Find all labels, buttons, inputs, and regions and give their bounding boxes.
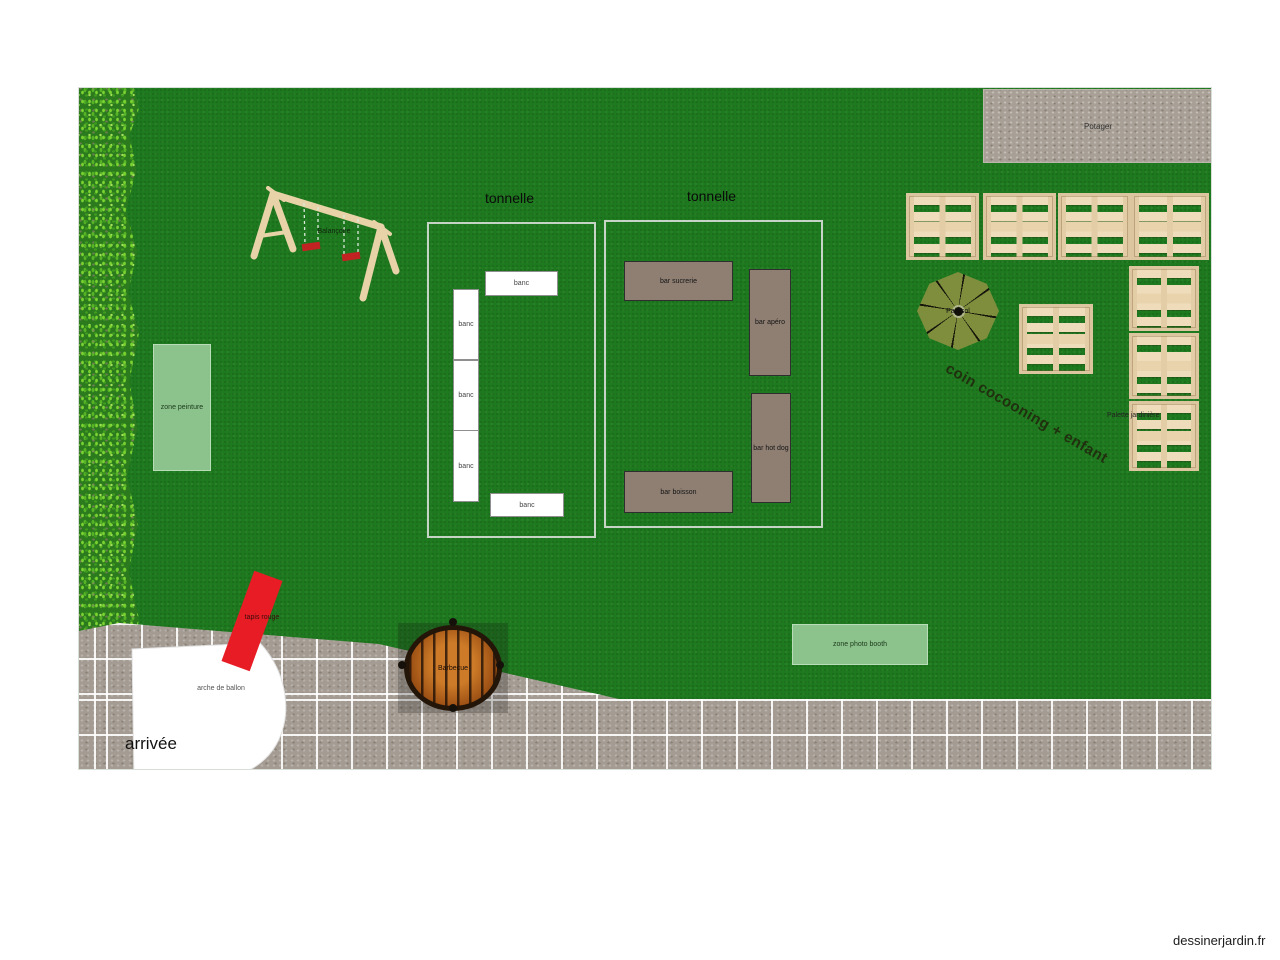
bench[interactable]: banc [485, 271, 558, 296]
pallet[interactable] [1131, 193, 1209, 260]
bar-boisson[interactable]: bar boisson [624, 471, 733, 513]
bench[interactable]: banc [453, 289, 479, 360]
pallet[interactable] [1019, 304, 1093, 374]
swing-set[interactable] [246, 186, 406, 306]
barbecue-knob [496, 661, 504, 669]
barbecue-knob [398, 661, 406, 669]
potager-plot[interactable]: Potager [983, 89, 1212, 163]
zone-photo-booth[interactable]: zone photo booth [792, 624, 928, 665]
watermark: dessinerjardin.fr [1173, 933, 1266, 948]
garden-canvas[interactable]: Potager Balançoire tonnelle banc banc ba… [78, 87, 1212, 770]
zone-peinture[interactable]: zone peinture [153, 344, 211, 471]
barbecue-knob [449, 618, 457, 626]
bar-apero[interactable]: bar apéro [749, 269, 791, 376]
parasol-label: Parasol [946, 308, 970, 315]
bar-sucrerie[interactable]: bar sucrerie [624, 261, 733, 301]
tonnelle-right-title[interactable]: tonnelle [604, 188, 819, 204]
parasol[interactable]: Parasol [917, 272, 999, 350]
bench[interactable]: banc [490, 493, 564, 517]
barbecue-knob [449, 704, 457, 712]
pallet[interactable] [1129, 266, 1199, 331]
red-carpet-label: tapis rouge [227, 614, 297, 621]
balloon-arch-label: arche de ballon [179, 685, 263, 692]
tonnelle-left-title[interactable]: tonnelle [427, 190, 592, 206]
arrivee-label[interactable]: arrivée [125, 734, 177, 754]
palette-label: Palette jardinière [1107, 412, 1199, 419]
pallet[interactable] [983, 193, 1056, 260]
bench[interactable]: banc [453, 360, 479, 431]
potager-label: Potager [1084, 122, 1112, 131]
pallet[interactable] [906, 193, 979, 260]
bar-hot-dog[interactable]: bar hot dog [751, 393, 791, 503]
pallet[interactable] [1129, 333, 1199, 399]
pallet[interactable] [1058, 193, 1131, 260]
swing-label: Balançoire [301, 228, 367, 235]
barbecue[interactable]: Barbecue [404, 625, 502, 711]
cocooning-label[interactable]: coin cocooning + enfant [943, 360, 1111, 467]
bench[interactable]: banc [453, 430, 479, 502]
